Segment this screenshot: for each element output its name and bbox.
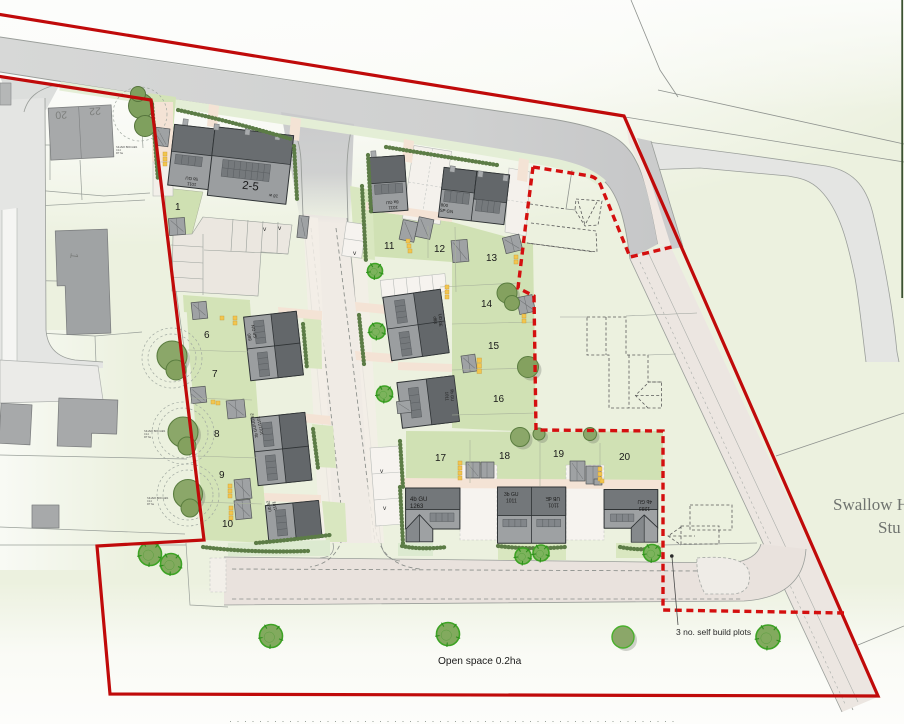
svg-text:1101: 1101	[548, 502, 559, 508]
svg-text:Open space 0.2ha: Open space 0.2ha	[438, 656, 522, 667]
svg-text:3 no. self build plots: 3 no. self build plots	[676, 627, 751, 637]
svg-text:10: 10	[222, 519, 234, 530]
svg-text:2-5: 2-5	[241, 180, 259, 194]
svg-text:6: 6	[204, 330, 210, 341]
svg-text:20: 20	[55, 108, 67, 121]
svg-text:1263: 1263	[410, 504, 424, 510]
svg-text:11: 11	[384, 241, 395, 252]
svg-text:3b GU: 3b GU	[504, 492, 519, 498]
svg-text:Swallow H: Swallow H	[833, 495, 904, 514]
svg-text:1: 1	[175, 202, 181, 213]
svg-text:16: 16	[493, 394, 505, 405]
svg-text:7: 7	[212, 369, 218, 380]
svg-text:14: 14	[481, 299, 493, 310]
svg-text:d88: d88	[432, 316, 437, 324]
svg-text:1011: 1011	[444, 392, 449, 402]
svg-text:17: 17	[435, 453, 447, 464]
svg-text:Stu: Stu	[878, 518, 901, 537]
svg-text:13: 13	[486, 253, 498, 264]
svg-text:15: 15	[488, 341, 500, 352]
svg-text:RT 6a: RT 6a	[144, 435, 152, 439]
svg-text:1011: 1011	[388, 205, 398, 211]
svg-text:8a GU: 8a GU	[386, 199, 399, 205]
svg-text:12: 12	[434, 244, 446, 255]
svg-text:RT 6a: RT 6a	[116, 151, 124, 155]
svg-text:8: 8	[214, 429, 220, 440]
svg-text:20: 20	[619, 452, 631, 463]
svg-text:RT 6a: RT 6a	[147, 502, 155, 506]
svg-text:4b GU: 4b GU	[637, 498, 652, 504]
svg-text:18: 18	[499, 451, 511, 462]
svg-text:4b GU: 4b GU	[410, 497, 427, 503]
svg-text:22: 22	[89, 104, 101, 117]
svg-text:1283: 1283	[639, 505, 650, 511]
svg-text:1011: 1011	[506, 499, 517, 505]
svg-text:19: 19	[553, 449, 565, 460]
svg-text:9: 9	[219, 470, 225, 481]
svg-text:UB dE: UB dE	[545, 495, 560, 501]
